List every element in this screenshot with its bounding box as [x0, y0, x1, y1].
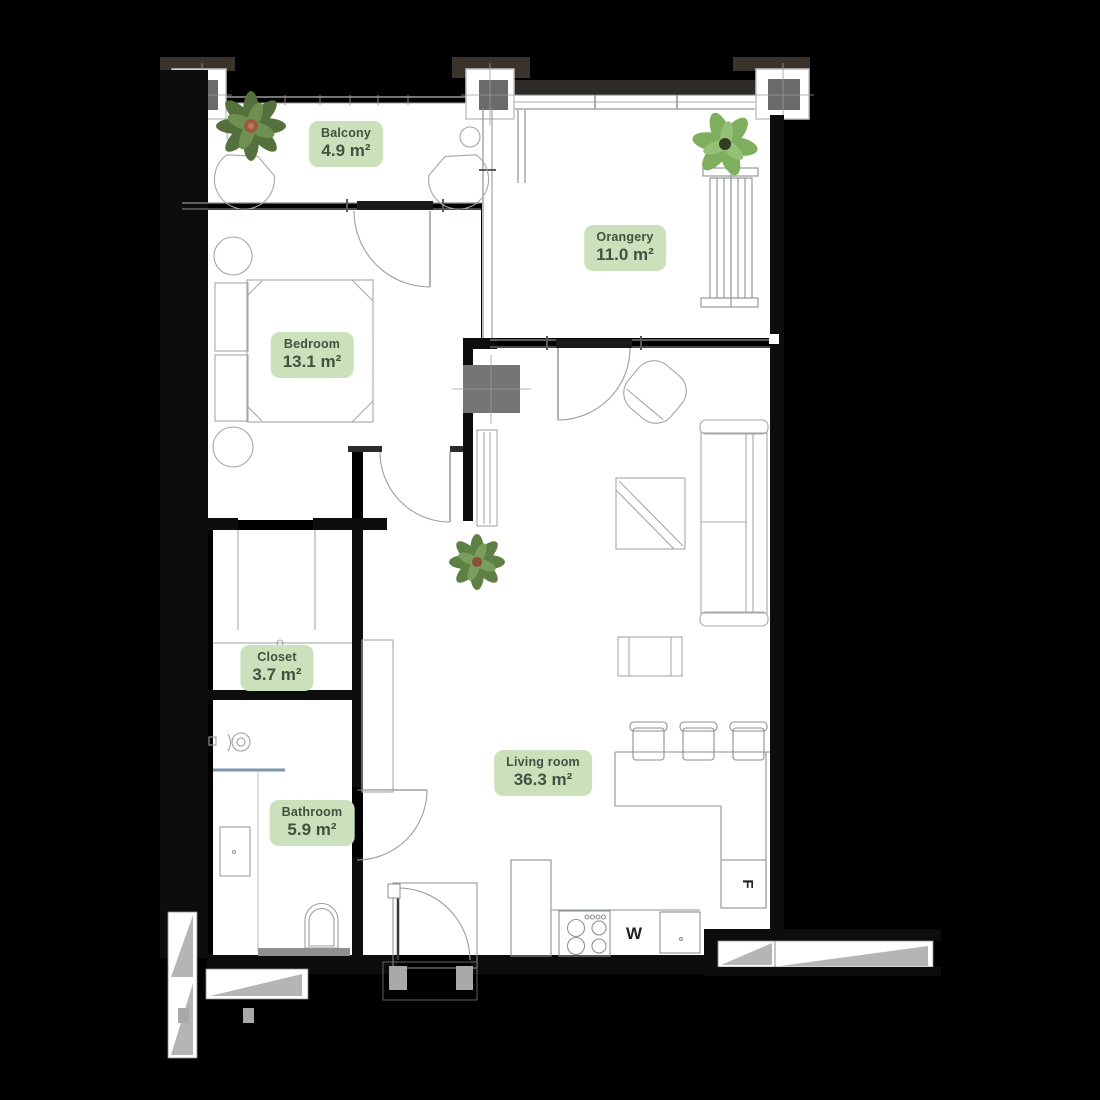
stairs-left-horizontal: [178, 969, 308, 1023]
orangery-sliding-door: [556, 339, 632, 348]
room-name: Bathroom: [282, 805, 343, 819]
room-area: 4.9 m²: [321, 141, 371, 161]
room-name: Closet: [252, 650, 301, 664]
room-area: 3.7 m²: [252, 665, 301, 685]
fridge-label: F: [739, 879, 756, 888]
wall-east: [770, 115, 784, 931]
wall-closet-east: [352, 528, 363, 787]
wall-bedroom-south-left: [348, 446, 382, 452]
wall-bottom-right: [470, 955, 712, 974]
balcony-sliding-door: [357, 201, 433, 210]
window-end-cap: [769, 334, 779, 344]
bedroom-floor-lower: [208, 452, 352, 520]
bedroom-floor-upper: [208, 210, 481, 338]
wall-closet-top-left: [208, 518, 238, 530]
pillar-middle: [461, 63, 519, 125]
room-name: Living room: [506, 755, 580, 769]
room-area: 13.1 m²: [283, 352, 342, 372]
floor-plan-drawing: W F: [0, 0, 1100, 1100]
room-area: 11.0 m²: [596, 245, 654, 265]
wall-bedroom-south-right: [450, 446, 463, 452]
stairs-left-vertical: [168, 912, 197, 1058]
floor-plan: W F Balcony 4.9 m² Orangery 11.0 m² Bedr…: [0, 0, 1100, 1100]
orangery-header: [513, 80, 757, 94]
room-label-bedroom: Bedroom 13.1 m²: [271, 332, 354, 378]
room-area: 5.9 m²: [282, 820, 343, 840]
plant-hallway: [449, 534, 505, 590]
room-name: Balcony: [321, 126, 371, 140]
wall-bath-east-lower: [352, 857, 363, 957]
room-area: 36.3 m²: [506, 770, 580, 790]
room-label-balcony: Balcony 4.9 m²: [309, 121, 383, 167]
door-hinge-mark: [388, 884, 400, 898]
room-label-closet: Closet 3.7 m²: [240, 645, 313, 691]
room-name: Bedroom: [283, 337, 342, 351]
plant-balcony: [216, 91, 286, 161]
bath-vanity-strip: [258, 948, 350, 956]
room-label-orangery: Orangery 11.0 m²: [584, 225, 666, 271]
room-name: Orangery: [596, 230, 654, 244]
washer-label: W: [626, 924, 643, 943]
living-floor: [473, 348, 770, 955]
stairs-right: [704, 929, 941, 976]
wall-closet-top-right: [313, 518, 387, 530]
room-label-living-room: Living room 36.3 m²: [494, 750, 592, 796]
wall-closet-bath-divider: [208, 690, 363, 700]
room-label-bathroom: Bathroom 5.9 m²: [270, 800, 355, 846]
